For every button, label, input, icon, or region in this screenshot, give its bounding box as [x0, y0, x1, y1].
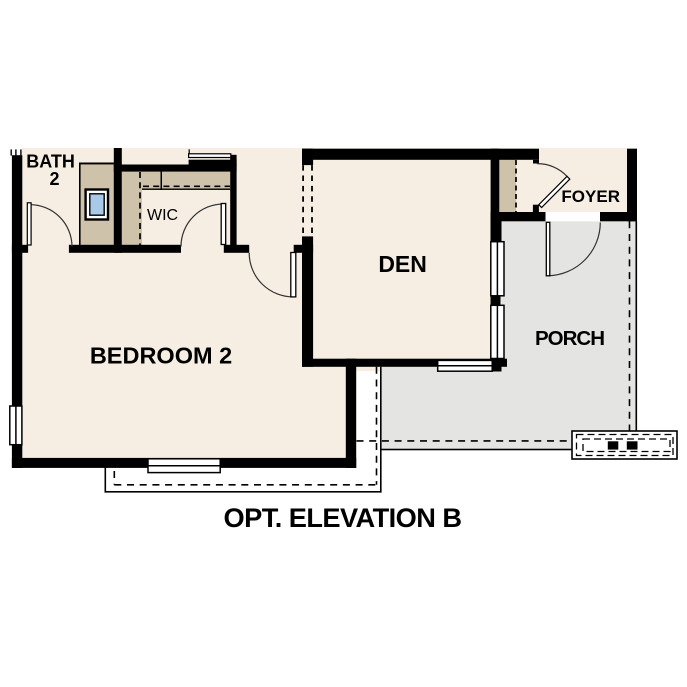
svg-text:2: 2	[49, 169, 59, 189]
svg-text:PORCH: PORCH	[535, 327, 604, 350]
svg-text:OPT. ELEVATION B: OPT. ELEVATION B	[224, 502, 462, 533]
svg-text:BEDROOM 2: BEDROOM 2	[90, 343, 232, 369]
svg-text:DEN: DEN	[378, 251, 427, 277]
svg-text:WIC: WIC	[147, 207, 178, 224]
svg-text:FOYER: FOYER	[561, 187, 620, 206]
